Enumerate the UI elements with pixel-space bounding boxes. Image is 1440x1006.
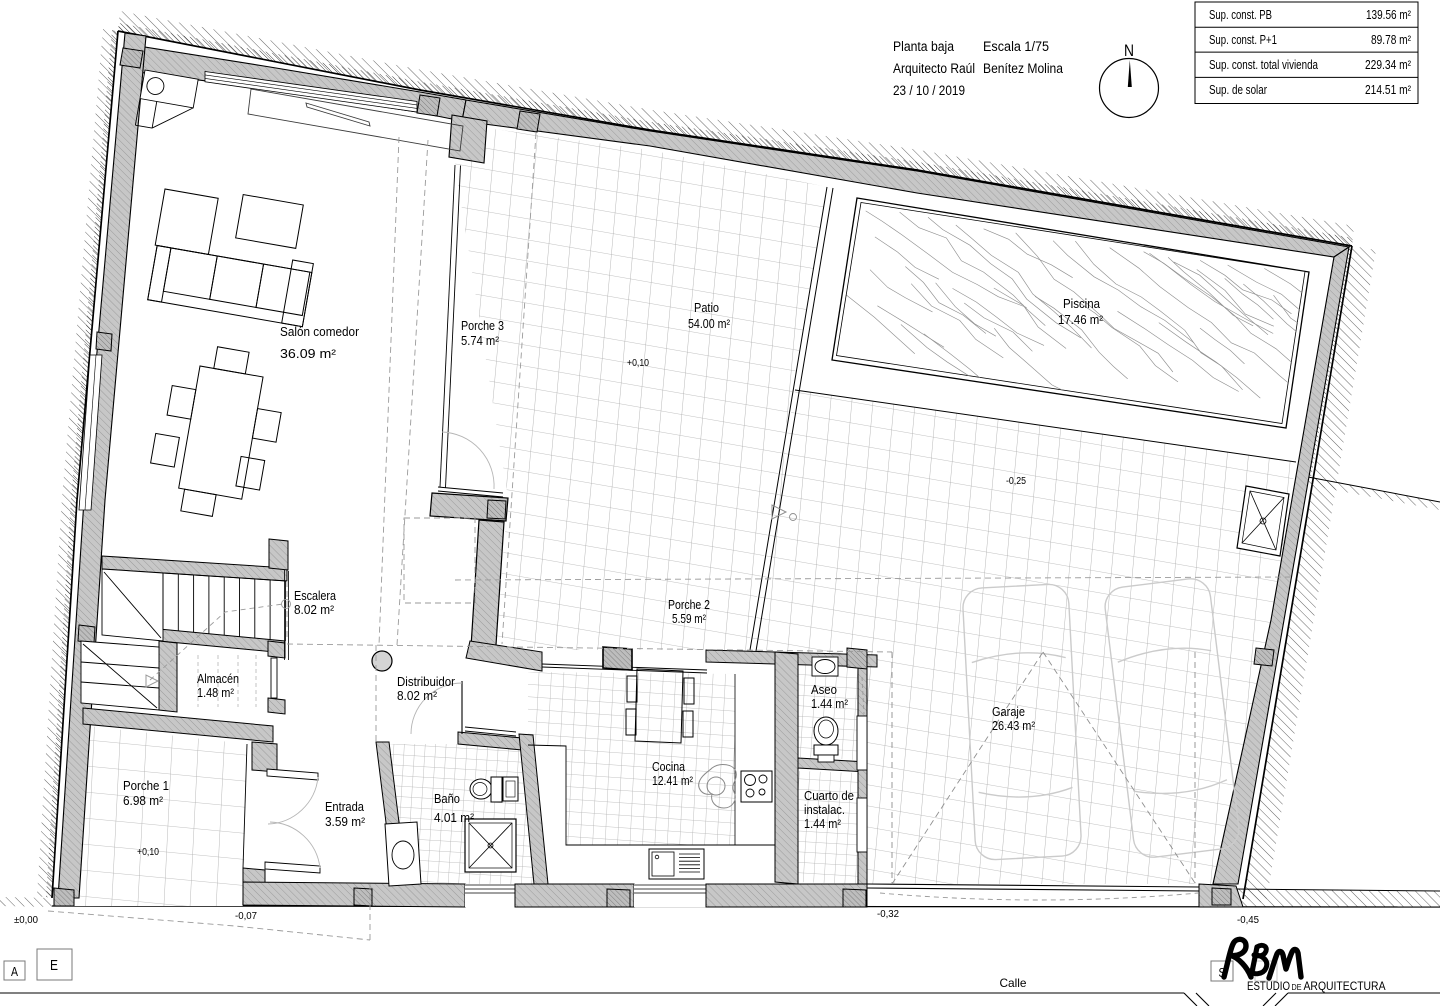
svg-text:36.09 m²: 36.09 m²: [280, 346, 337, 361]
svg-text:1.44 m²: 1.44 m²: [804, 816, 842, 831]
svg-text:Sup. const. total vivienda: Sup. const. total vivienda: [1209, 58, 1318, 72]
svg-text:±0,00: ±0,00: [14, 915, 38, 926]
svg-text:-0,45: -0,45: [1237, 915, 1259, 926]
svg-text:5.74 m²: 5.74 m²: [461, 333, 500, 348]
svg-text:ARQUITECTURA: ARQUITECTURA: [1304, 979, 1386, 993]
svg-text:Sup. const. P+1: Sup. const. P+1: [1209, 33, 1277, 47]
svg-text:6.98 m²: 6.98 m²: [123, 793, 164, 808]
svg-text:Benítez Molina: Benítez Molina: [983, 61, 1063, 76]
svg-text:229.34 m²: 229.34 m²: [1365, 58, 1411, 72]
svg-text:Escalera: Escalera: [294, 588, 337, 603]
svg-text:E: E: [50, 957, 58, 974]
svg-text:1.48 m²: 1.48 m²: [197, 685, 235, 700]
svg-text:DE: DE: [1292, 982, 1302, 992]
svg-text:+0,10: +0,10: [627, 358, 649, 369]
svg-text:5.59 m²: 5.59 m²: [672, 611, 707, 626]
svg-text:1.44 m²: 1.44 m²: [811, 696, 849, 711]
svg-text:instalac.: instalac.: [804, 802, 845, 817]
svg-text:-0,32: -0,32: [877, 909, 899, 920]
svg-text:54.00 m²: 54.00 m²: [688, 316, 731, 331]
svg-text:Sup. const. PB: Sup. const. PB: [1209, 8, 1272, 22]
svg-text:Aseo: Aseo: [811, 682, 837, 697]
svg-text:89.78 m²: 89.78 m²: [1371, 33, 1411, 47]
svg-text:-0,07: -0,07: [235, 911, 257, 922]
svg-text:Arquitecto Raúl: Arquitecto Raúl: [893, 61, 975, 76]
svg-text:Escala 1/75: Escala 1/75: [983, 39, 1049, 54]
svg-text:Piscina: Piscina: [1063, 296, 1101, 311]
svg-text:26.43 m²: 26.43 m²: [992, 718, 1036, 733]
svg-text:Entrada: Entrada: [325, 799, 365, 814]
svg-text:214.51 m²: 214.51 m²: [1365, 83, 1411, 97]
svg-text:8.02 m²: 8.02 m²: [397, 688, 438, 703]
svg-text:Almacén: Almacén: [197, 671, 239, 686]
svg-text:23 / 10 / 2019: 23 / 10 / 2019: [893, 83, 965, 98]
svg-text:-0,25: -0,25: [1006, 476, 1026, 487]
svg-text:Sup. de solar: Sup. de solar: [1209, 83, 1267, 97]
svg-text:Distribuidor: Distribuidor: [397, 674, 456, 689]
svg-text:Patio: Patio: [694, 300, 719, 315]
svg-text:A: A: [11, 964, 18, 979]
svg-text:12.41 m²: 12.41 m²: [652, 773, 694, 788]
svg-text:+0,10: +0,10: [137, 847, 159, 858]
svg-text:Porche 2: Porche 2: [668, 597, 710, 612]
svg-text:Baño: Baño: [434, 791, 460, 806]
svg-text:Salón comedor: Salón comedor: [280, 324, 360, 339]
svg-text:ESTUDIO: ESTUDIO: [1247, 979, 1290, 993]
svg-text:Calle: Calle: [1000, 976, 1027, 990]
svg-text:3.59 m²: 3.59 m²: [325, 814, 366, 829]
svg-text:17.46 m²: 17.46 m²: [1058, 312, 1104, 327]
svg-text:Porche 3: Porche 3: [461, 318, 504, 333]
svg-text:Porche 1: Porche 1: [123, 778, 169, 793]
svg-text:Cocina: Cocina: [652, 759, 686, 774]
svg-text:8.02 m²: 8.02 m²: [294, 602, 335, 617]
svg-text:Cuarto de: Cuarto de: [804, 788, 854, 803]
svg-text:N: N: [1124, 41, 1134, 60]
svg-text:139.56 m²: 139.56 m²: [1366, 8, 1411, 22]
svg-text:Garaje: Garaje: [992, 704, 1025, 719]
svg-text:4.01 m²: 4.01 m²: [434, 810, 475, 825]
svg-text:Planta baja: Planta baja: [893, 39, 954, 54]
